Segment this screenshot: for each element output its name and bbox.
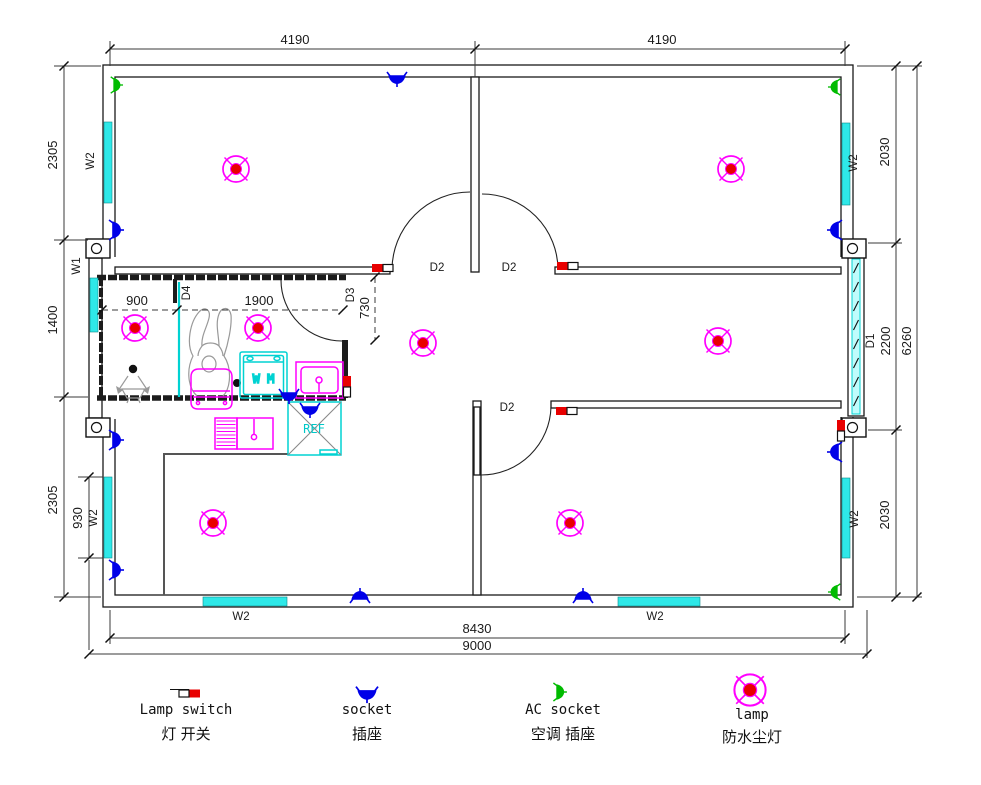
legend-label-zh: 灯 开关 <box>161 726 210 743</box>
lamp-icon <box>734 674 765 705</box>
dim-label: 2030 <box>877 501 892 530</box>
legend-item-ac-socket: AC socket 空调 插座 <box>525 683 601 743</box>
washer-label: W M <box>253 372 275 386</box>
door-label: D2 <box>500 402 515 414</box>
legend-label-zh: 空调 插座 <box>531 726 595 743</box>
legend-label-en: AC socket <box>525 702 601 718</box>
dim-label: 2305 <box>45 486 60 515</box>
dim-label: 2030 <box>877 138 892 167</box>
switch-icon <box>557 262 578 270</box>
switch-icon <box>837 420 845 441</box>
window-w2-bottom-left <box>104 477 112 558</box>
door-label: D3 <box>345 288 357 303</box>
switch-icon <box>343 376 351 397</box>
door-label: D2 <box>430 262 445 274</box>
window-label: W2 <box>85 152 97 169</box>
legend: Lamp switch 灯 开关 socket 插座 AC socket 空调 … <box>140 674 782 746</box>
dim-label: 1900 <box>245 293 274 308</box>
legend-item-lamp: lamp 防水尘灯 <box>722 674 782 746</box>
fridge-label: REF <box>303 422 325 436</box>
dim-label: 930 <box>70 507 85 529</box>
legend-label-zh: 防水尘灯 <box>722 729 782 746</box>
sliding-door-d1 <box>848 257 864 416</box>
door-label: D2 <box>502 262 517 274</box>
switch-icon <box>179 690 200 698</box>
upper-divider-wall <box>471 77 479 272</box>
mid-wall-left <box>115 267 390 274</box>
window-w2-bottom-wall-left <box>203 597 287 606</box>
window-label: W2 <box>232 611 249 623</box>
window-w2-top-left <box>104 122 112 203</box>
column <box>86 418 110 437</box>
ac-socket-icon <box>553 683 567 701</box>
dim-label: 2305 <box>45 141 60 170</box>
door-label: D4 <box>181 285 193 300</box>
legend-label-en: socket <box>342 702 393 718</box>
window-w2-bottom-wall-right <box>618 597 700 606</box>
legend-label-en: lamp <box>735 707 769 723</box>
lower-mid-wall <box>551 401 841 408</box>
switch-icon <box>372 264 393 272</box>
dim-label: 4190 <box>648 32 677 47</box>
column <box>842 239 866 258</box>
door-label: D1 <box>865 334 877 349</box>
dim-label: 8430 <box>463 621 492 636</box>
legend-item-socket: socket 插座 <box>342 687 393 743</box>
dim-label: 9000 <box>463 638 492 653</box>
window-w1 <box>90 278 98 332</box>
dim-label: 900 <box>126 293 148 308</box>
column <box>86 239 110 258</box>
mid-wall-right <box>555 267 841 274</box>
dim-label: 730 <box>357 297 372 319</box>
dim-label: 1400 <box>45 306 60 335</box>
window-label: W2 <box>646 611 663 623</box>
dim-label: 4190 <box>281 32 310 47</box>
window-label: W2 <box>88 509 100 526</box>
floor-plan-canvas: W M <box>0 0 981 785</box>
legend-item-lamp-switch: Lamp switch 灯 开关 <box>140 690 233 744</box>
window-label: W2 <box>849 510 861 527</box>
column <box>842 418 866 437</box>
legend-label-en: Lamp switch <box>140 702 233 718</box>
floor-plan-page: W M <box>0 0 981 785</box>
window-label: W2 <box>848 154 860 171</box>
socket-icon <box>356 687 378 704</box>
legend-label-zh: 插座 <box>352 726 382 743</box>
dim-label: 2200 <box>878 327 893 356</box>
dim-label: 6260 <box>899 327 914 356</box>
window-label: W1 <box>71 257 83 274</box>
switch-icon <box>556 407 577 415</box>
